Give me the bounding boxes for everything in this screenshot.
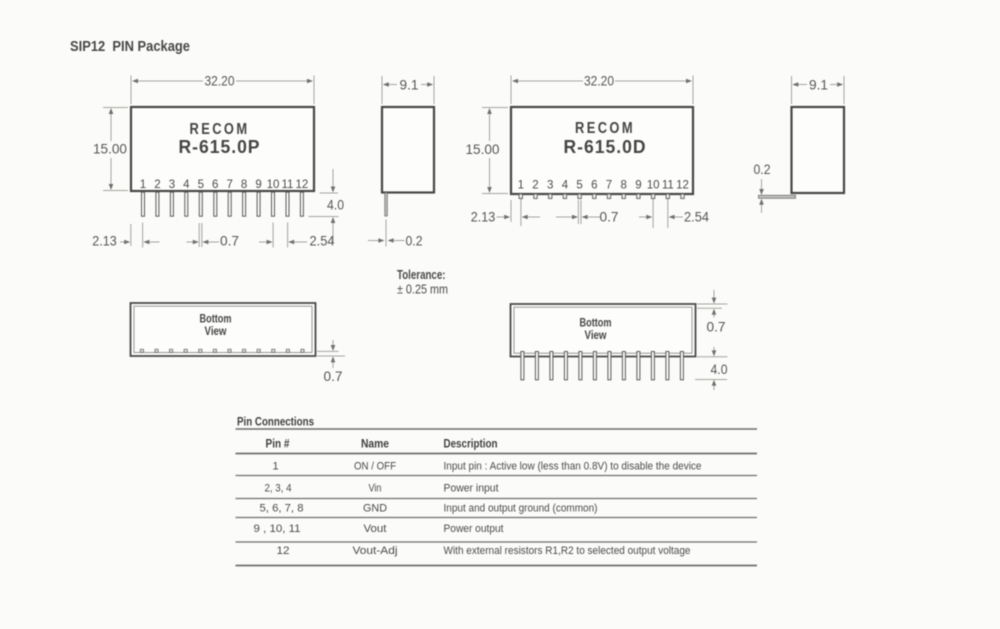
svg-text:32.20: 32.20 [205,73,235,89]
svg-text:SIP12 PIN Package: SIP12 PIN Package [70,38,190,55]
svg-text:2: 2 [154,179,160,191]
svg-text:Vout: Vout [364,523,387,535]
svg-text:9.1: 9.1 [400,77,419,93]
svg-text:Bottom: Bottom [580,318,612,330]
svg-text:Pin #: Pin # [266,439,291,451]
svg-text:4.0: 4.0 [327,197,344,213]
svg-text:2.54: 2.54 [310,233,335,249]
svg-text:Vout-Adj: Vout-Adj [353,545,398,557]
svg-text:0.7: 0.7 [324,368,343,384]
svg-text:Input pin : Active low (less t: Input pin : Active low (less than 0.8V) … [444,461,702,473]
svg-text:32.20: 32.20 [584,73,614,89]
svg-text:7: 7 [606,180,612,192]
svg-text:Input and output ground (commo: Input and output ground (common) [444,503,598,515]
svg-text:Pin Connections: Pin Connections [237,415,314,429]
svg-text:2.13: 2.13 [471,209,496,225]
svg-text:R-615.0P: R-615.0P [179,137,261,157]
svg-text:ON / OFF: ON / OFF [354,461,396,473]
svg-text:2.13: 2.13 [92,233,117,249]
svg-text:8: 8 [241,179,247,191]
svg-text:2: 2 [532,180,538,192]
svg-text:2, 3, 4: 2, 3, 4 [265,483,292,495]
svg-text:5: 5 [198,179,204,191]
svg-text:View: View [585,330,607,342]
svg-text:Description: Description [444,439,498,451]
svg-text:2.54: 2.54 [684,209,709,225]
svg-text:With external resistors R1,R2: With external resistors R1,R2 to selecte… [444,545,691,557]
svg-text:11: 11 [662,180,674,192]
svg-text:GND: GND [363,503,387,515]
svg-text:11: 11 [282,179,294,191]
svg-text:Bottom: Bottom [200,314,232,326]
svg-text:12: 12 [277,545,290,557]
svg-text:0.2: 0.2 [406,233,423,249]
svg-text:Vin: Vin [369,483,382,495]
svg-text:0.7: 0.7 [707,319,726,335]
svg-text:5, 6, 7, 8: 5, 6, 7, 8 [260,503,304,515]
svg-text:10: 10 [647,180,660,192]
svg-text:1: 1 [140,179,146,191]
svg-text:9: 9 [635,180,641,192]
svg-text:10: 10 [267,179,280,191]
svg-text:± 0.25 mm: ± 0.25 mm [397,283,448,297]
svg-text:12: 12 [676,180,689,192]
svg-text:4: 4 [183,179,190,191]
svg-text:7: 7 [226,179,232,191]
svg-text:9 , 10, 11: 9 , 10, 11 [254,523,301,535]
svg-text:0.7: 0.7 [220,233,239,249]
svg-text:9: 9 [255,179,261,191]
svg-text:5: 5 [576,180,582,192]
svg-text:0.7: 0.7 [600,209,619,225]
svg-text:0.2: 0.2 [754,161,771,177]
svg-text:4.0: 4.0 [711,361,728,377]
svg-text:1: 1 [272,461,278,473]
svg-text:Power output: Power output [444,523,504,535]
svg-text:Power input: Power input [444,483,499,495]
svg-text:1: 1 [518,180,524,192]
svg-text:View: View [205,326,227,338]
svg-text:R-615.0D: R-615.0D [564,137,647,157]
svg-text:3: 3 [169,179,175,191]
svg-text:RECOM: RECOM [190,121,250,138]
svg-text:3: 3 [547,180,553,192]
svg-text:8: 8 [620,180,626,192]
svg-text:12: 12 [296,179,309,191]
svg-text:6: 6 [212,179,218,191]
svg-text:4: 4 [562,180,569,192]
svg-text:9.1: 9.1 [809,77,828,93]
svg-text:Tolerance:: Tolerance: [397,268,446,282]
svg-text:15.00: 15.00 [466,141,500,157]
svg-text:6: 6 [591,180,597,192]
svg-text:15.00: 15.00 [93,141,127,157]
svg-text:RECOM: RECOM [575,120,635,137]
svg-text:Name: Name [361,439,389,451]
